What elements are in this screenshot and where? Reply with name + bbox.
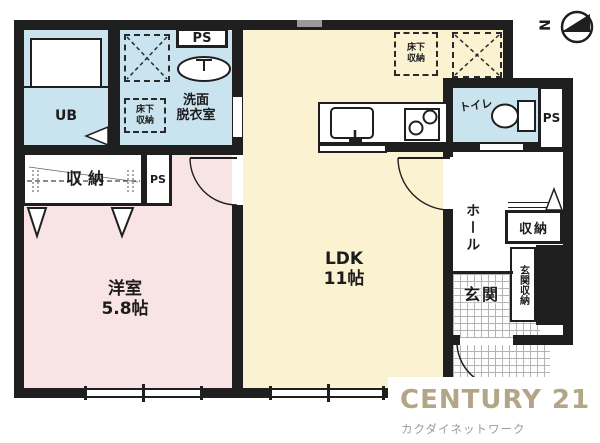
window-ldk-post-right xyxy=(382,386,385,400)
western-room-size: 5.8帖 xyxy=(70,300,180,320)
washroom-label-line1: 洗面 xyxy=(158,94,234,109)
underfloor-wash-line1: 床下 xyxy=(136,105,154,116)
window-ldk-mullion xyxy=(327,384,330,402)
appliance-space-ldk xyxy=(452,32,502,78)
western-room-name: 洋室 xyxy=(70,280,180,300)
wall-vent-segment xyxy=(297,20,322,27)
wall-top xyxy=(14,20,512,30)
window-ldk-post-left xyxy=(269,386,272,400)
underfloor-wash-line2: 収納 xyxy=(136,116,154,127)
ps-closet-label: PS xyxy=(150,173,166,186)
wall-genkan-storage-block xyxy=(536,245,563,325)
wall-entry-left xyxy=(443,335,460,345)
western-door-opening xyxy=(232,155,243,205)
bathtub xyxy=(30,38,102,88)
compass-circle xyxy=(562,12,592,42)
brand-panel: CENTURY 21 カクダイネットワーク xyxy=(388,377,600,443)
genkan-storage-label: 玄関収納 xyxy=(516,265,531,305)
underfloor-storage-ldk: 床下 収納 xyxy=(394,32,438,76)
hall-label: ホール xyxy=(464,182,480,274)
hall-closet-label: 収納 xyxy=(519,218,549,237)
genkan-label: 玄関 xyxy=(455,286,509,304)
ub-separator-line xyxy=(24,86,108,88)
underfloor-ldk-line1: 床下 xyxy=(407,43,425,54)
ps-right-label: PS xyxy=(543,111,560,125)
compass-needle xyxy=(563,14,590,31)
hall-closet-front-line xyxy=(508,202,560,208)
window-western-mullion xyxy=(142,384,145,402)
toilet-door xyxy=(480,143,523,151)
window-western-post-right xyxy=(200,386,203,400)
ps-box-washroom: PS xyxy=(176,28,228,48)
ldk-name: LDK xyxy=(300,250,388,270)
western-room-label: 洋室 5.8帖 xyxy=(70,280,180,319)
hall-door-opening xyxy=(443,157,453,209)
brand-company-text: カクダイネットワーク xyxy=(401,421,526,437)
kitchen-sink xyxy=(330,107,374,139)
genkan-step-line xyxy=(453,271,513,274)
ldk-size: 11帖 xyxy=(300,270,388,290)
ub-label: UB xyxy=(40,108,92,124)
wall-left xyxy=(14,20,24,398)
wall-entry-right xyxy=(513,335,563,345)
kitchen-stove xyxy=(404,108,440,141)
kitchen-counter-edge xyxy=(318,144,387,153)
wall-western-ldk-divider xyxy=(232,205,243,398)
hall-closet-box: 収納 xyxy=(505,210,563,244)
closet-left-label: 収納 xyxy=(40,170,130,188)
ps-box-right: PS xyxy=(538,86,565,150)
washing-machine-space xyxy=(124,34,170,82)
compass-n-label: N xyxy=(538,15,554,35)
washroom-label-line2: 脱衣室 xyxy=(158,109,234,124)
wall-hall-left-lower xyxy=(443,209,453,345)
wall-ub-right xyxy=(108,30,120,148)
ps-box-closet: PS xyxy=(144,152,172,206)
ldk-label: LDK 11帖 xyxy=(300,250,388,289)
wall-washroom-right-upper xyxy=(232,30,243,97)
ps-washroom-label: PS xyxy=(193,31,212,46)
wall-washroom-right-lower xyxy=(232,137,243,155)
washroom-label: 洗面 脱衣室 xyxy=(158,94,234,124)
genkan-storage-box: 玄関収納 xyxy=(510,247,536,322)
underfloor-ldk-line2: 収納 xyxy=(407,54,425,65)
window-western-post-left xyxy=(84,386,87,400)
brand-logo-text: CENTURY 21 xyxy=(400,385,590,415)
